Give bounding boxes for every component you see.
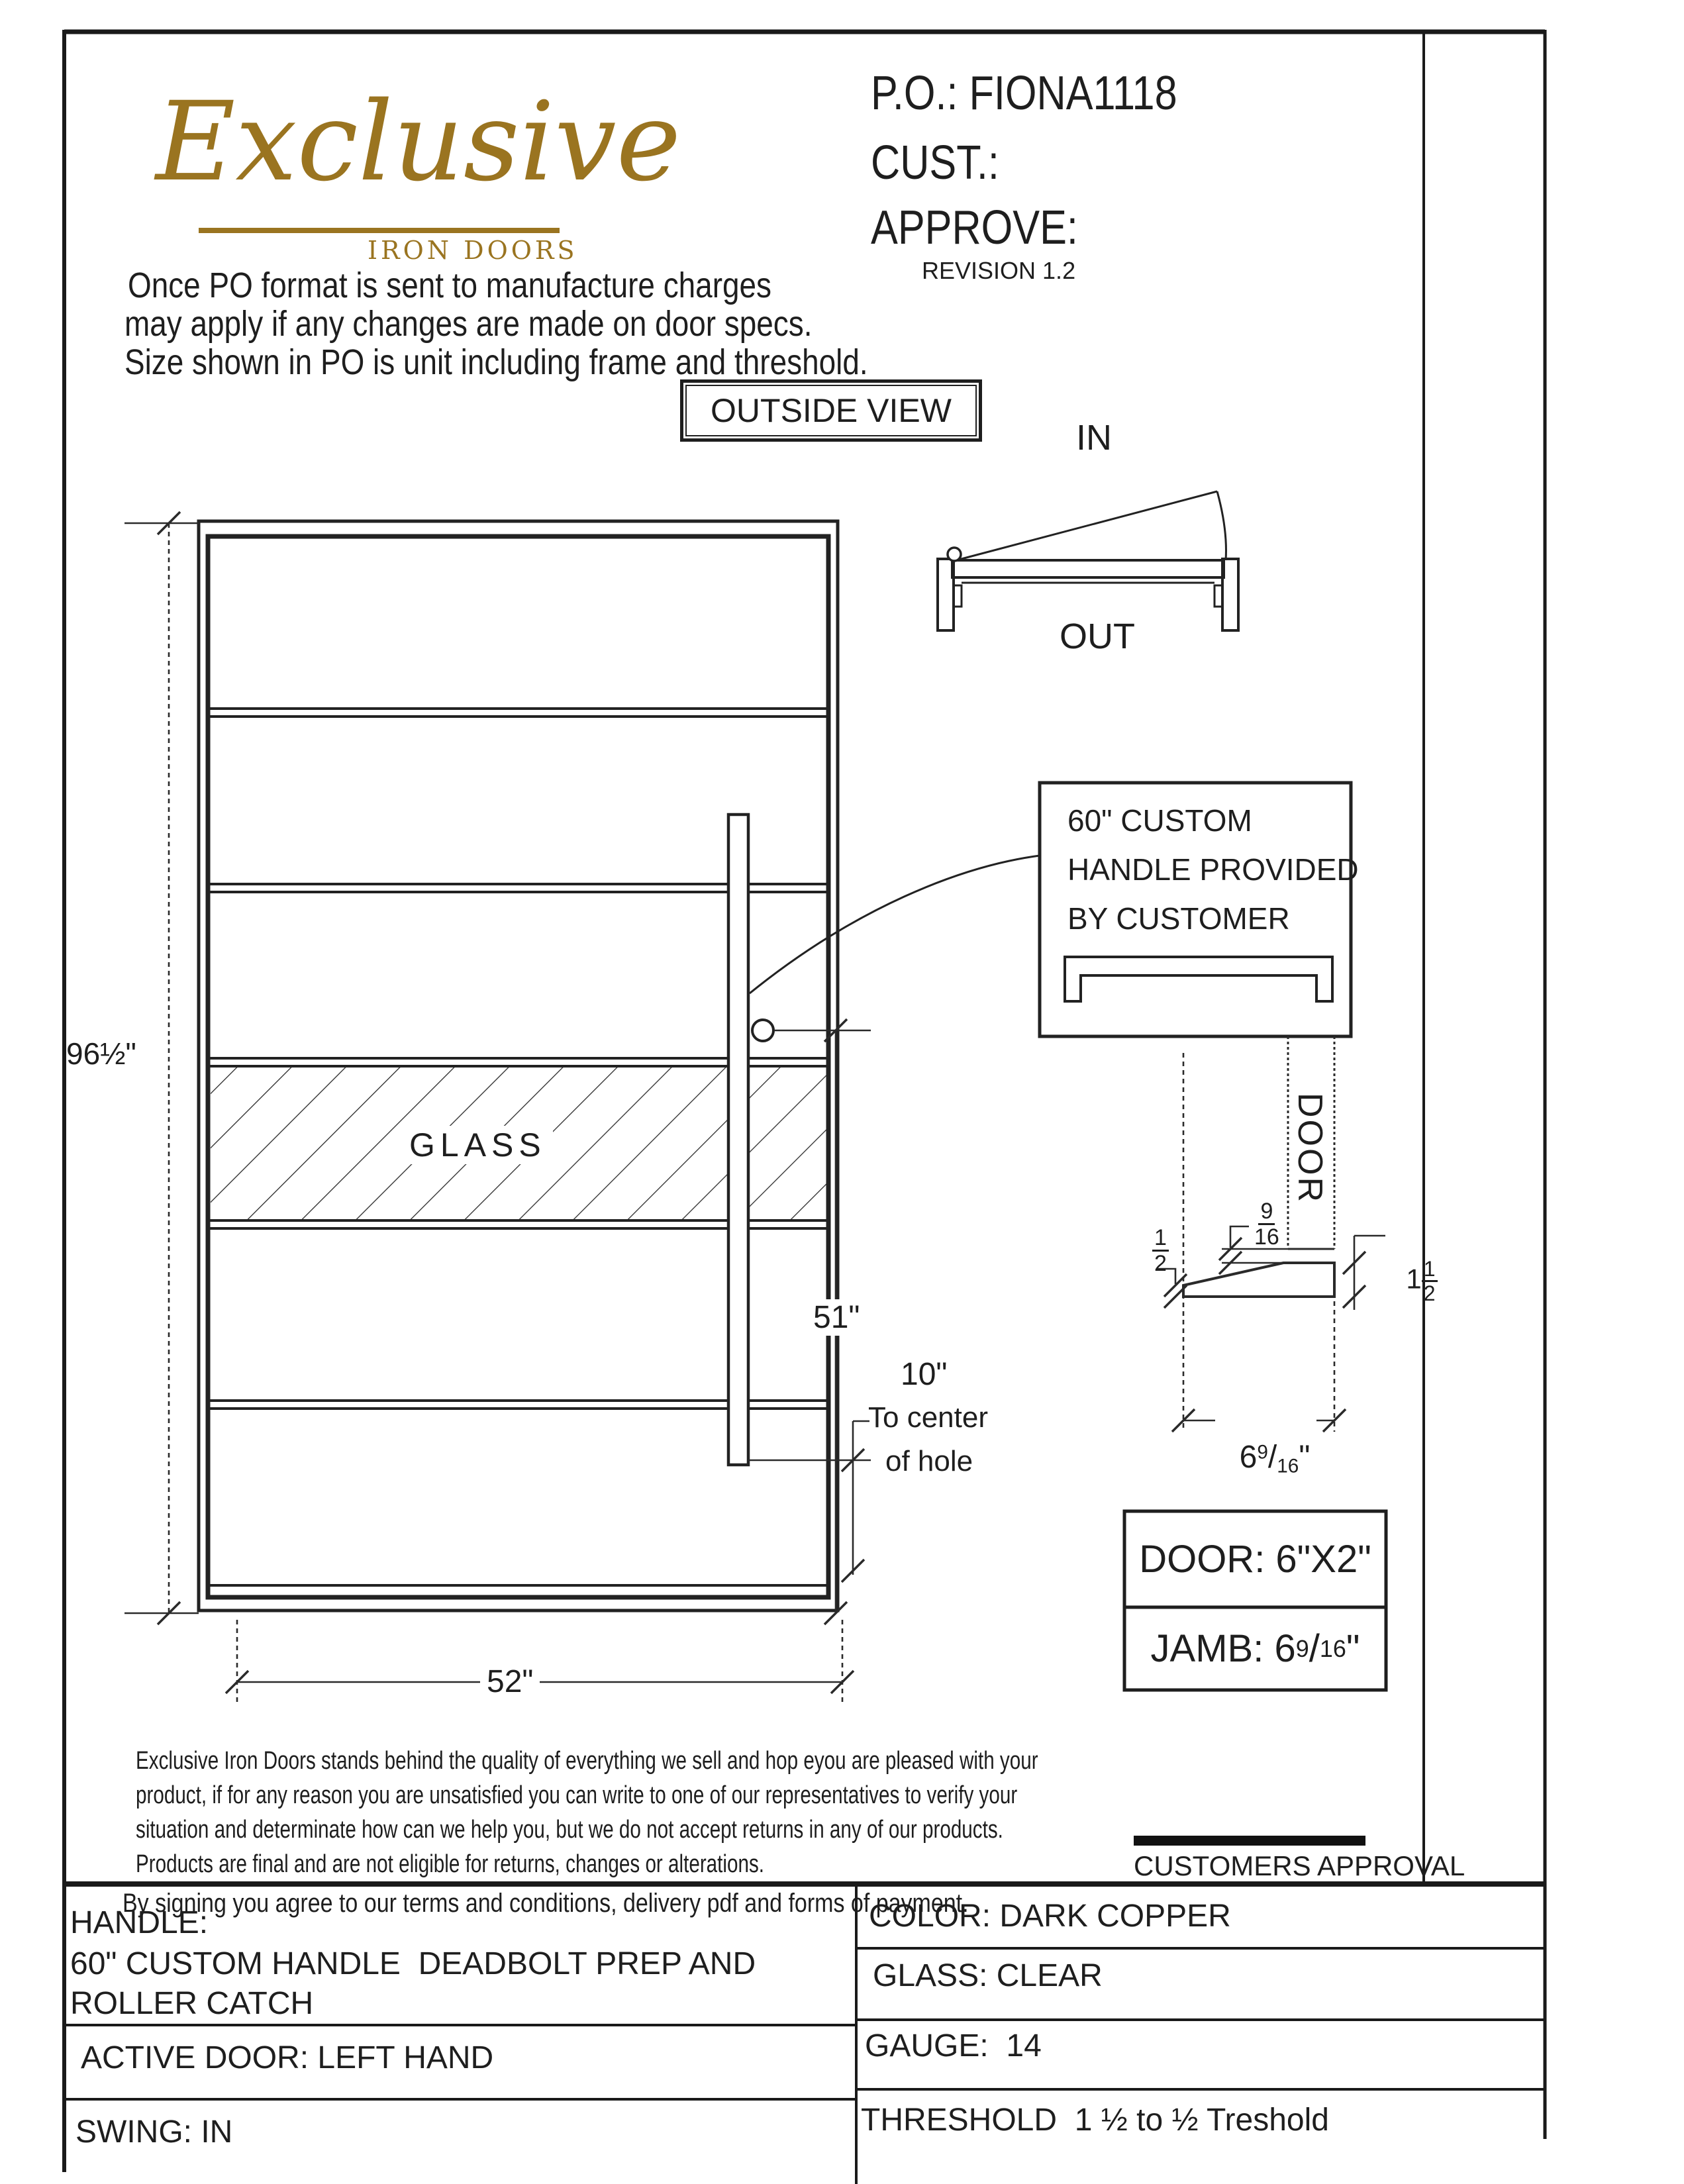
door-height-dim: 96½": [66, 1036, 136, 1071]
open-door-line: [959, 491, 1217, 560]
threshold-profile: [1183, 1263, 1334, 1297]
handle-height-dim: 51": [807, 1299, 866, 1336]
customers-approval-label: CUSTOMERS APPROVAL: [1134, 1850, 1365, 1882]
handle-callout-line-1: 60" CUSTOM: [1067, 803, 1252, 838]
handle-callout-line-2: HANDLE PROVIDED: [1067, 852, 1359, 887]
approve-field: APPROVE:: [871, 201, 1078, 255]
table-cell-handle-line-2: 60" CUSTOM HANDLE DEADBOLT PREP AND: [70, 1946, 756, 1982]
spec-table-lines: [64, 1884, 1545, 2184]
terms-line-4: Products are final and are not eligible …: [136, 1850, 764, 1879]
jamb-width-dim: 69/16": [1215, 1403, 1316, 1477]
handle-hole: [752, 1020, 773, 1041]
signature-line: [1134, 1836, 1365, 1846]
door-spec-label: DOOR: 6"X2": [1124, 1511, 1386, 1607]
hole-offset-dim: 10": [901, 1356, 947, 1393]
plan-door-slab: [952, 560, 1224, 577]
jamb-spec-label: JAMB: 69/16": [1124, 1607, 1386, 1690]
swing-arc: [1217, 491, 1226, 560]
swing-in-label: IN: [1076, 417, 1112, 458]
note-line-1: Once PO format is sent to manufacture ch…: [128, 265, 771, 306]
table-cell-gauge: GAUGE: 14: [865, 2028, 1042, 2064]
glass-label: GLASS: [403, 1126, 553, 1164]
table-cell-color: COLOR: DARK COPPER: [869, 1898, 1231, 1934]
customer-field: CUST.:: [871, 136, 999, 190]
swing-out-label: OUT: [1060, 616, 1135, 657]
note-line-2: may apply if any changes are made on doo…: [124, 303, 812, 344]
logo-wordmark: Exclusive: [156, 78, 681, 205]
logo-tagline: IRON DOORS: [368, 236, 560, 265]
note-line-3: Size shown in PO is unit including frame…: [124, 342, 868, 383]
terms-line-3: situation and determinate how can we hel…: [136, 1816, 1003, 1844]
table-cell-handle-line-1: HANDLE:: [70, 1905, 208, 1941]
table-cell-glass: GLASS: CLEAR: [873, 1958, 1103, 1994]
handle-callout-line-3: BY CUSTOMER: [1067, 901, 1290, 936]
table-cell-threshold: THRESHOLD 1 ½ to ½ Treshold: [861, 2102, 1329, 2138]
left-height-fraction: 12: [1152, 1226, 1169, 1275]
revision-label: REVISION 1.2: [922, 257, 1075, 285]
hole-note-line-1: To center: [868, 1401, 988, 1434]
door-width-dim: 52": [480, 1663, 540, 1700]
terms-line-1: Exclusive Iron Doors stands behind the q…: [136, 1747, 1038, 1775]
table-cell-active-door: ACTIVE DOOR: LEFT HAND: [81, 2040, 493, 2076]
po-number: P.O.: FIONA1118: [871, 66, 1177, 121]
right-height-dim: 112: [1391, 1226, 1438, 1304]
table-cell-handle-line-3: ROLLER CATCH: [70, 1985, 313, 2022]
scanned-door-spec-page: { "logo": { "name": "Exclusive", "taglin…: [0, 0, 1684, 2184]
callout-leader: [750, 856, 1040, 993]
door-elevation: [199, 521, 838, 1611]
signing-note: By signing you agree to our terms and co…: [123, 1889, 969, 1918]
outside-view-label: OUTSIDE VIEW: [680, 379, 982, 442]
jamb-detail-door-label: DOOR: [1290, 1093, 1330, 1204]
logo-underline: [199, 228, 560, 233]
gap-dim-fraction: 916: [1254, 1200, 1279, 1248]
table-cell-swing: SWING: IN: [75, 2114, 232, 2150]
swing-diagram: [938, 491, 1238, 630]
handle-bar: [728, 815, 748, 1465]
hole-note-line-2: of hole: [885, 1445, 973, 1478]
terms-line-2: product, if for any reason you are unsat…: [136, 1781, 1017, 1810]
